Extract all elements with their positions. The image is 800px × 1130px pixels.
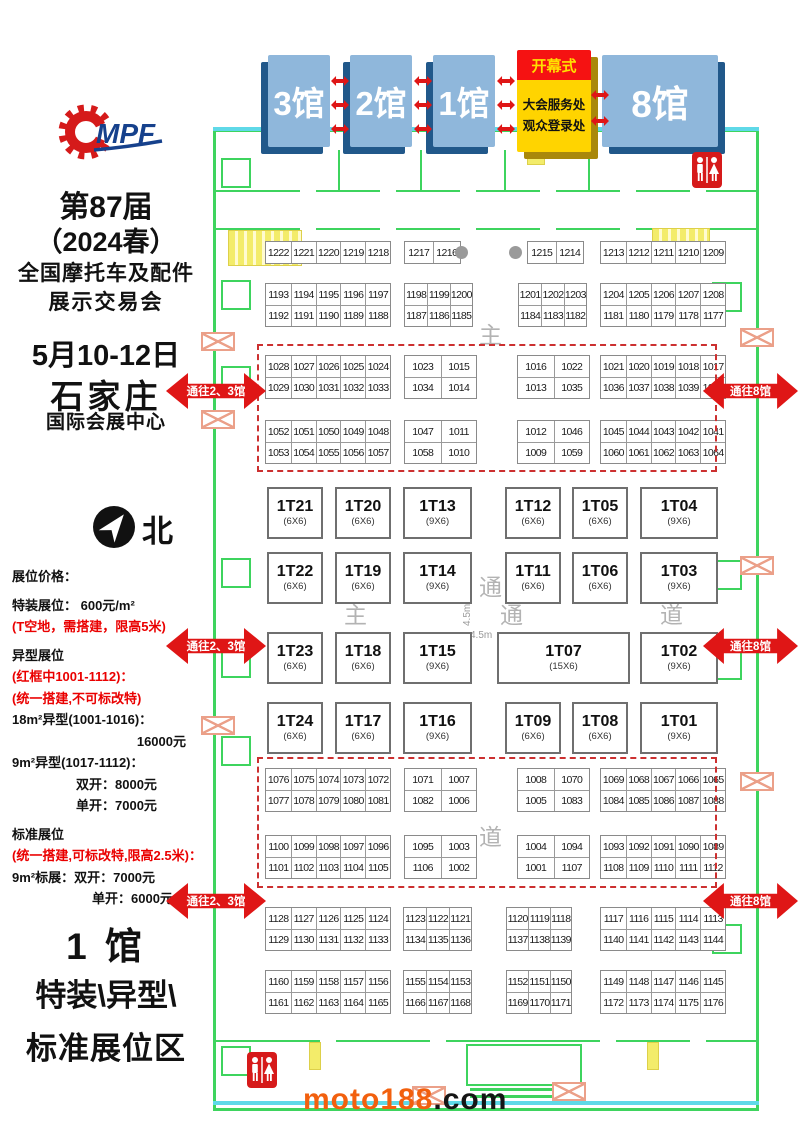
booth-1186: 1186 — [427, 305, 449, 326]
booth-label: 1T17 — [345, 713, 381, 731]
booth-1128: 1128 — [266, 908, 291, 929]
booth-1185: 1185 — [450, 305, 472, 326]
booth-1164: 1164 — [340, 992, 365, 1013]
booth-label: 1T14 — [419, 563, 455, 581]
booth-1175: 1175 — [675, 992, 700, 1013]
booth-size: (9X6) — [426, 732, 449, 743]
booth-size: (6X6) — [283, 732, 306, 743]
booth-1184: 1184 — [519, 305, 541, 326]
booth-size: (6X6) — [588, 732, 611, 743]
booth-label: 1T18 — [345, 643, 381, 661]
booth-1T11: 1T11(6X6) — [505, 552, 561, 604]
watermark-tld: .com — [433, 1083, 507, 1116]
booth-1T08: 1T08(6X6) — [572, 702, 628, 754]
booth-1187: 1187 — [405, 305, 427, 326]
booth-block: 115211511150116911701171 — [506, 970, 572, 1014]
service-box: 开幕式 大会服务处 观众登录处 — [517, 50, 591, 152]
booth-1147: 1147 — [651, 971, 676, 992]
booth-1146: 1146 — [675, 971, 700, 992]
booth-1127: 1127 — [291, 908, 316, 929]
booth-label: 1T15 — [419, 643, 455, 661]
event-dates: 5月10-12日 — [0, 332, 212, 374]
booth-1141: 1141 — [626, 929, 651, 950]
booth-1213: 1213 — [601, 242, 626, 263]
zone-hall-label: 1 馆 — [0, 916, 212, 970]
booth-1181: 1181 — [601, 305, 626, 326]
pricing-line: (统一搭建,可标改特,限高2.5米)： — [12, 845, 212, 867]
pricing-line: 16000元 — [12, 731, 212, 753]
booth-1162: 1162 — [291, 992, 316, 1013]
booth-1204: 1204 — [601, 284, 626, 305]
booth-1T07: 1T07(15X6) — [497, 632, 630, 684]
pricing-list: 展位价格：特装展位： 600元/m²(T空地，需搭建，限高5米)异型展位(红框中… — [12, 566, 212, 910]
booth-1200: 1200 — [450, 284, 472, 305]
booth-1217: 1217 — [405, 242, 433, 263]
booth-size: (6X6) — [521, 582, 544, 593]
main-aisle-label: 通 — [479, 568, 502, 602]
restroom-icon — [247, 1052, 277, 1088]
booth-1T18: 1T18(6X6) — [335, 632, 391, 684]
hall-2-box: 2馆 — [350, 55, 412, 147]
booth-1203: 1203 — [564, 284, 586, 305]
transfer-arrow-icon — [497, 100, 515, 110]
booth-1199: 1199 — [427, 284, 449, 305]
booth-1166: 1166 — [404, 992, 426, 1013]
transfer-arrow-icon — [331, 76, 349, 86]
south-entrance-structure — [466, 1044, 582, 1086]
booth-size: (9X6) — [667, 582, 690, 593]
booth-1T05: 1T05(6X6) — [572, 487, 628, 539]
booth-1197: 1197 — [365, 284, 390, 305]
zone-type-label: 特装\异型\ — [0, 970, 212, 1015]
booth-1179: 1179 — [651, 305, 676, 326]
booth-1155: 1155 — [404, 971, 426, 992]
door-symbol — [201, 332, 235, 351]
booth-1133: 1133 — [365, 929, 390, 950]
restroom-icon — [692, 152, 722, 188]
booth-1172: 1172 — [601, 992, 626, 1013]
door-gap — [620, 227, 636, 231]
north-compass-icon — [92, 505, 136, 549]
booth-1123: 1123 — [404, 908, 426, 929]
transfer-arrow-label: 通往8馆 — [730, 383, 771, 399]
booth-1156: 1156 — [365, 971, 390, 992]
booth-block: 12131212121112101209 — [600, 241, 726, 264]
booth-1189: 1189 — [340, 305, 365, 326]
booth-size: (9X6) — [426, 662, 449, 673]
booth-block: 12221221122012191218 — [265, 241, 391, 264]
door-gap — [300, 189, 316, 193]
booth-1218: 1218 — [365, 242, 390, 263]
booth-1170: 1170 — [528, 992, 549, 1013]
hall-3-box: 3馆 — [268, 55, 330, 147]
booth-1120: 1120 — [507, 908, 528, 929]
booth-1165: 1165 — [365, 992, 390, 1013]
booth-1195: 1195 — [316, 284, 341, 305]
opening-ceremony-label: 开幕式 — [517, 50, 591, 80]
booth-block: 12171216 — [404, 241, 461, 264]
event-name-line2: 展示交易会 — [0, 286, 212, 316]
booth-1T06: 1T06(6X6) — [572, 552, 628, 604]
booth-1221: 1221 — [291, 242, 316, 263]
service-desk-line1: 大会服务处 — [523, 95, 586, 116]
booth-1T21: 1T21(6X6) — [267, 487, 323, 539]
booth-1T19: 1T19(6X6) — [335, 552, 391, 604]
booth-size: (6X6) — [351, 582, 374, 593]
booth-1153: 1153 — [449, 971, 471, 992]
booth-1206: 1206 — [651, 284, 676, 305]
booth-label: 1T22 — [277, 563, 313, 581]
booth-1144: 1144 — [700, 929, 725, 950]
booth-1T01: 1T01(9X6) — [640, 702, 718, 754]
booth-1139: 1139 — [550, 929, 571, 950]
booth-1207: 1207 — [675, 284, 700, 305]
interior-wall — [420, 150, 422, 190]
door-gap — [540, 227, 556, 231]
booth-1T15: 1T15(9X6) — [403, 632, 472, 684]
aisle-width-label: 4.5m — [470, 630, 492, 641]
booth-size: (9X6) — [667, 732, 690, 743]
booth-1150: 1150 — [550, 971, 571, 992]
booth-1T13: 1T13(9X6) — [403, 487, 472, 539]
booth-1202: 1202 — [541, 284, 563, 305]
booth-block: 115511541153116611671168 — [403, 970, 472, 1014]
booth-1220: 1220 — [316, 242, 341, 263]
booth-1191: 1191 — [291, 305, 316, 326]
booth-1222: 1222 — [266, 242, 291, 263]
booth-1214: 1214 — [556, 242, 584, 263]
booth-label: 1T06 — [582, 563, 618, 581]
booth-1121: 1121 — [449, 908, 471, 929]
hall-8-box: 8馆 — [602, 55, 718, 147]
booth-1115: 1115 — [651, 908, 676, 929]
booth-1152: 1152 — [507, 971, 528, 992]
booth-1T12: 1T12(6X6) — [505, 487, 561, 539]
booth-label: 1T13 — [419, 498, 455, 516]
door-gap — [300, 227, 316, 231]
door-symbol — [552, 1082, 586, 1101]
booth-1137: 1137 — [507, 929, 528, 950]
interior-wall — [215, 1040, 757, 1042]
booth-1151: 1151 — [528, 971, 549, 992]
booth-size: (9X6) — [667, 517, 690, 528]
hall-1-box: 1馆 — [433, 55, 495, 147]
booth-1183: 1183 — [541, 305, 563, 326]
booth-1192: 1192 — [266, 305, 291, 326]
booth-label: 1T02 — [661, 643, 697, 661]
booth-size: (6X6) — [521, 517, 544, 528]
interior-wall — [588, 150, 590, 190]
booth-1182: 1182 — [564, 305, 586, 326]
transfer-arrow-label: 通往2、3馆 — [187, 383, 246, 399]
booth-size: (6X6) — [588, 582, 611, 593]
booth-1149: 1149 — [601, 971, 626, 992]
booth-1163: 1163 — [316, 992, 341, 1013]
booth-1212: 1212 — [626, 242, 651, 263]
booth-1154: 1154 — [426, 971, 448, 992]
booth-1136: 1136 — [449, 929, 471, 950]
booth-block: 12151214 — [527, 241, 584, 264]
registration-line2: 观众登录处 — [523, 116, 586, 137]
interior-wall — [338, 150, 340, 190]
booth-1176: 1176 — [700, 992, 725, 1013]
booth-1219: 1219 — [340, 242, 365, 263]
transfer-arrow-label: 通往2、3馆 — [187, 638, 246, 654]
booth-label: 1T16 — [419, 713, 455, 731]
booth-size: (6X6) — [283, 582, 306, 593]
door-symbol — [201, 716, 235, 735]
booth-1T02: 1T02(9X6) — [640, 632, 718, 684]
pricing-line: (统一搭建,不可标改特) — [12, 688, 212, 710]
booth-1208: 1208 — [700, 284, 725, 305]
pricing-line: 18m²异型(1001-1016)： — [12, 709, 212, 731]
transfer-arrow-label: 通往8馆 — [730, 893, 771, 909]
door-symbol — [740, 772, 774, 791]
booth-label: 1T08 — [582, 713, 618, 731]
booth-size: (6X6) — [351, 662, 374, 673]
booth-label: 1T19 — [345, 563, 381, 581]
pillar-dot — [509, 246, 522, 259]
booth-label: 1T11 — [515, 563, 551, 581]
door-gap — [380, 189, 396, 193]
pricing-line: 展位价格： — [12, 566, 212, 588]
booth-block: 119811991200118711861185 — [404, 283, 473, 327]
booth-size: (6X6) — [521, 732, 544, 743]
booth-block: 1160115911581157115611611162116311641165 — [265, 970, 391, 1014]
booth-block: 120112021203118411831182 — [518, 283, 587, 327]
door-gap — [620, 189, 636, 193]
booth-1124: 1124 — [365, 908, 390, 929]
booth-1193: 1193 — [266, 284, 291, 305]
booth-label: 1T09 — [515, 713, 551, 731]
door-gap — [690, 189, 706, 193]
booth-1157: 1157 — [340, 971, 365, 992]
booth-1169: 1169 — [507, 992, 528, 1013]
transfer-arrow-label: 通往8馆 — [730, 638, 771, 654]
booth-size: (9X6) — [667, 662, 690, 673]
booth-label: 1T04 — [661, 498, 697, 516]
booth-size: (9X6) — [426, 517, 449, 528]
booth-1140: 1140 — [601, 929, 626, 950]
pricing-line: 单开：7000元 — [12, 795, 212, 817]
door-symbol — [201, 410, 235, 429]
pricing-line: 标准展位 — [12, 824, 212, 846]
booth-1135: 1135 — [426, 929, 448, 950]
booth-label: 1T03 — [661, 563, 697, 581]
booth-1205: 1205 — [626, 284, 651, 305]
booth-1211: 1211 — [651, 242, 676, 263]
booth-1160: 1160 — [266, 971, 291, 992]
booth-1117: 1117 — [601, 908, 626, 929]
north-label: 北 — [142, 506, 173, 551]
booth-label: 1T20 — [345, 498, 381, 516]
door-gap — [430, 1039, 446, 1043]
booth-1188: 1188 — [365, 305, 390, 326]
watermark-site: moto188 — [303, 1083, 433, 1116]
zone-area-label: 标准展位区 — [0, 1023, 212, 1068]
booth-1119: 1119 — [528, 908, 549, 929]
booth-block: 1204120512061207120811811180117911781177 — [600, 283, 726, 327]
booth-1134: 1134 — [404, 929, 426, 950]
booth-size: (6X6) — [588, 517, 611, 528]
transfer-arrow-icon — [331, 100, 349, 110]
booth-size: (6X6) — [283, 662, 306, 673]
booth-label: 1T05 — [582, 498, 618, 516]
irregular-booth-zone-outline — [257, 344, 717, 472]
booth-1T16: 1T16(9X6) — [403, 702, 472, 754]
booth-1167: 1167 — [426, 992, 448, 1013]
wall-room — [221, 558, 251, 588]
event-season: （2024春） — [0, 220, 212, 259]
booth-1138: 1138 — [528, 929, 549, 950]
booth-label: 1T12 — [515, 498, 551, 516]
booth-1132: 1132 — [340, 929, 365, 950]
booth-size: (15X6) — [549, 662, 578, 673]
booth-1209: 1209 — [700, 242, 725, 263]
pricing-line: 9m²异型(1017-1112)： — [12, 752, 212, 774]
booth-1173: 1173 — [626, 992, 651, 1013]
event-venue: 国际会展中心 — [0, 407, 212, 434]
transfer-arrow-icon — [414, 76, 432, 86]
floorplan-poster: MPF 第87届 （2024春） 全国摩托车及配件 展示交易会 5月10-12日… — [0, 0, 800, 1130]
pillar-dot — [455, 246, 468, 259]
booth-1196: 1196 — [340, 284, 365, 305]
booth-1T24: 1T24(6X6) — [267, 702, 323, 754]
booth-1125: 1125 — [340, 908, 365, 929]
door-gap — [320, 1039, 336, 1043]
door-gap — [460, 227, 476, 231]
booth-1210: 1210 — [675, 242, 700, 263]
booth-1190: 1190 — [316, 305, 341, 326]
wall-room — [221, 158, 251, 188]
booth-1T22: 1T22(6X6) — [267, 552, 323, 604]
booth-1T14: 1T14(9X6) — [403, 552, 472, 604]
booth-block: 1193119411951196119711921191119011891188 — [265, 283, 391, 327]
booth-1118: 1118 — [550, 908, 571, 929]
aisle-width-label: 4.5m — [462, 604, 473, 626]
booth-1161: 1161 — [266, 992, 291, 1013]
booth-1T20: 1T20(6X6) — [335, 487, 391, 539]
booth-1T23: 1T23(6X6) — [267, 632, 323, 684]
booth-1T03: 1T03(9X6) — [640, 552, 718, 604]
booth-block: 1117111611151114111311401141114211431144 — [600, 907, 726, 951]
booth-block: 1149114811471146114511721173117411751176 — [600, 970, 726, 1014]
event-name-line1: 全国摩托车及配件 — [0, 257, 212, 287]
transfer-arrow-icon — [414, 100, 432, 110]
booth-block: 112311221121113411351136 — [403, 907, 472, 951]
booth-1177: 1177 — [700, 305, 725, 326]
booth-1198: 1198 — [405, 284, 427, 305]
booth-1178: 1178 — [675, 305, 700, 326]
watermark: moto188.com — [303, 1083, 507, 1117]
booth-label: 1T24 — [277, 713, 313, 731]
booth-1145: 1145 — [700, 971, 725, 992]
booth-1T04: 1T04(9X6) — [640, 487, 718, 539]
booth-size: (6X6) — [283, 517, 306, 528]
door-gap — [600, 1039, 616, 1043]
pricing-line: 9m²标展：双开：7000元 — [12, 867, 212, 889]
irregular-booth-zone-outline — [257, 757, 717, 888]
booth-1174: 1174 — [651, 992, 676, 1013]
transfer-arrow-label: 通往2、3馆 — [187, 893, 246, 909]
transfer-arrow-icon — [497, 76, 515, 86]
door-symbol — [740, 328, 774, 347]
pricing-line: (红框中1001-1112)： — [12, 666, 212, 688]
booth-1201: 1201 — [519, 284, 541, 305]
booth-size: (9X6) — [426, 582, 449, 593]
booth-1130: 1130 — [291, 929, 316, 950]
booth-block: 1128112711261125112411291130113111321133 — [265, 907, 391, 951]
door-gap — [460, 189, 476, 193]
booth-1168: 1168 — [449, 992, 471, 1013]
interior-wall — [215, 190, 757, 192]
booth-1180: 1180 — [626, 305, 651, 326]
booth-label: 1T23 — [277, 643, 313, 661]
booth-1T17: 1T17(6X6) — [335, 702, 391, 754]
wall-room — [221, 280, 251, 310]
door-gap — [540, 189, 556, 193]
booth-size: (6X6) — [351, 732, 374, 743]
booth-label: 1T07 — [545, 643, 581, 661]
booth-size: (6X6) — [351, 517, 374, 528]
booth-1T09: 1T09(6X6) — [505, 702, 561, 754]
door-gap — [690, 1039, 706, 1043]
cmpf-logo: MPF — [58, 96, 176, 162]
booth-label: 1T21 — [277, 498, 313, 516]
booth-1158: 1158 — [316, 971, 341, 992]
wall-room — [221, 736, 251, 766]
stairs-area — [647, 1042, 659, 1070]
booth-1131: 1131 — [316, 929, 341, 950]
pricing-line: 双开：8000元 — [12, 774, 212, 796]
booth-label: 1T01 — [661, 713, 697, 731]
booth-1194: 1194 — [291, 284, 316, 305]
booth-block: 112011191118113711381139 — [506, 907, 572, 951]
service-desk-labels: 大会服务处 观众登录处 — [517, 80, 591, 152]
booth-1129: 1129 — [266, 929, 291, 950]
booth-1159: 1159 — [291, 971, 316, 992]
booth-1148: 1148 — [626, 971, 651, 992]
pricing-line: 特装展位： 600元/m² — [12, 595, 212, 617]
booth-1122: 1122 — [426, 908, 448, 929]
booth-1142: 1142 — [651, 929, 676, 950]
booth-1114: 1114 — [675, 908, 700, 929]
door-symbol — [740, 556, 774, 575]
stairs-area — [309, 1042, 321, 1070]
booth-1116: 1116 — [626, 908, 651, 929]
booth-1126: 1126 — [316, 908, 341, 929]
booth-1171: 1171 — [550, 992, 571, 1013]
booth-1215: 1215 — [528, 242, 556, 263]
booth-1143: 1143 — [675, 929, 700, 950]
door-gap — [380, 227, 396, 231]
interior-wall — [504, 150, 506, 190]
